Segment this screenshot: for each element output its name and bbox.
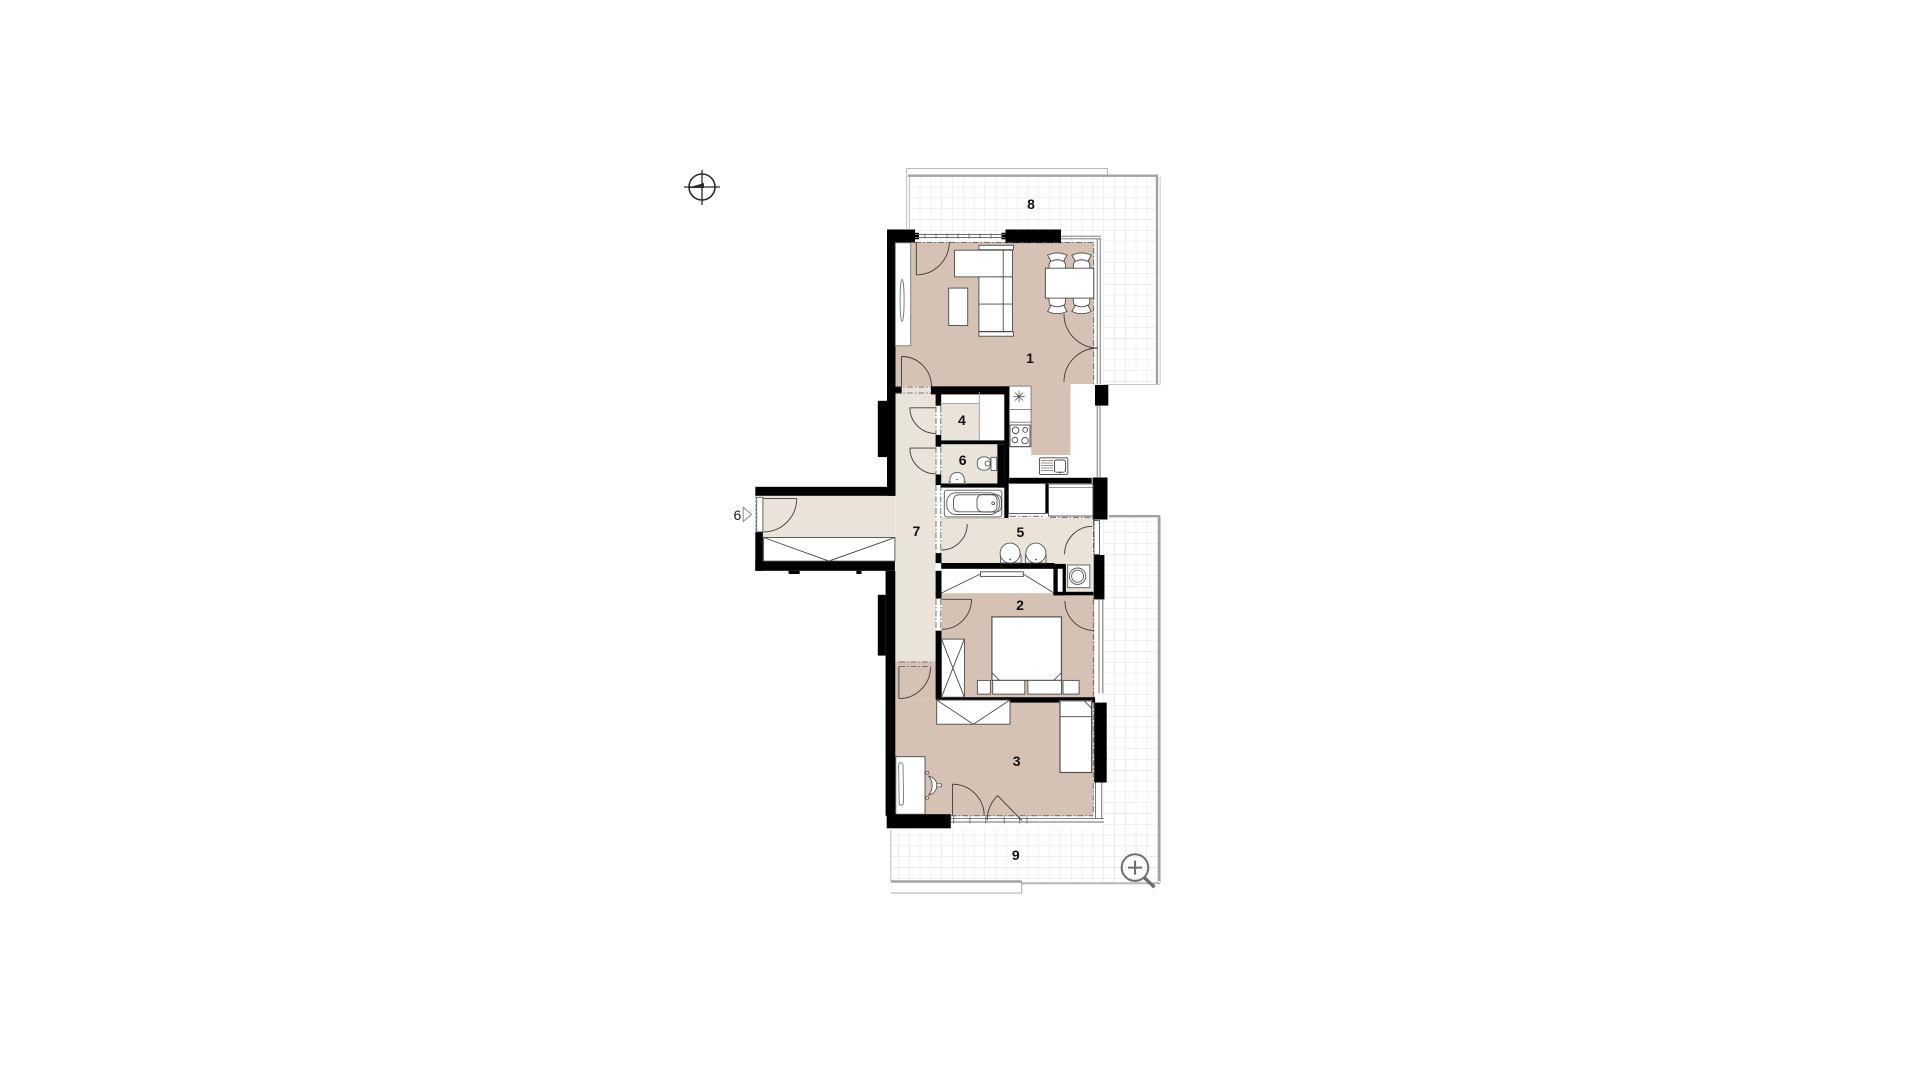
svg-text:2: 2	[1016, 597, 1024, 613]
svg-text:6: 6	[734, 507, 742, 523]
svg-text:7: 7	[913, 523, 921, 539]
svg-text:5: 5	[1017, 524, 1025, 540]
svg-text:6: 6	[959, 452, 967, 468]
svg-text:4: 4	[958, 412, 966, 428]
svg-text:8: 8	[1027, 196, 1035, 212]
svg-text:9: 9	[1012, 847, 1020, 863]
svg-text:1: 1	[1026, 350, 1034, 366]
svg-text:3: 3	[1013, 753, 1021, 769]
